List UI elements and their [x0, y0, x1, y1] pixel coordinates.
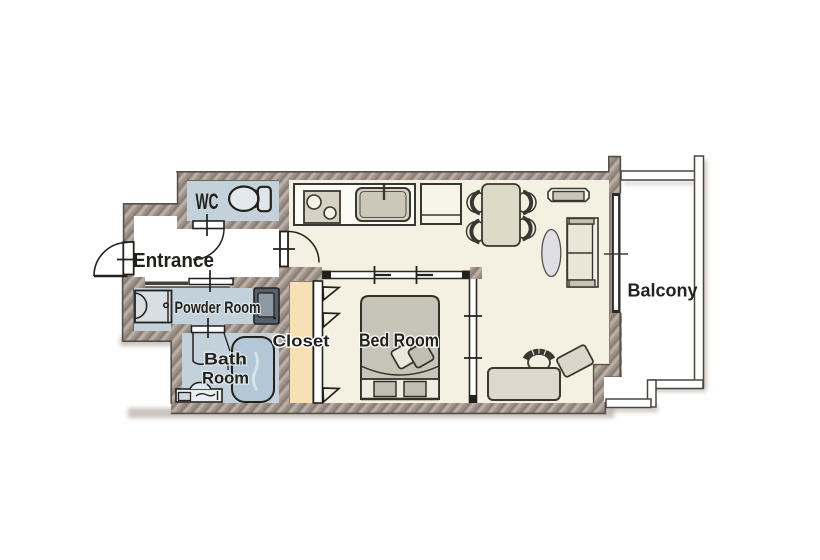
svg-text:Closet: Closet: [273, 332, 330, 351]
svg-text:Bath: Bath: [204, 350, 247, 369]
svg-text:Powder Room: Powder Room: [175, 299, 261, 317]
svg-text:Room: Room: [202, 369, 249, 388]
svg-text:WC: WC: [196, 189, 219, 214]
svg-text:Entrance: Entrance: [133, 250, 214, 272]
svg-text:Bed Room: Bed Room: [359, 330, 439, 351]
svg-text:Balcony: Balcony: [628, 281, 698, 301]
